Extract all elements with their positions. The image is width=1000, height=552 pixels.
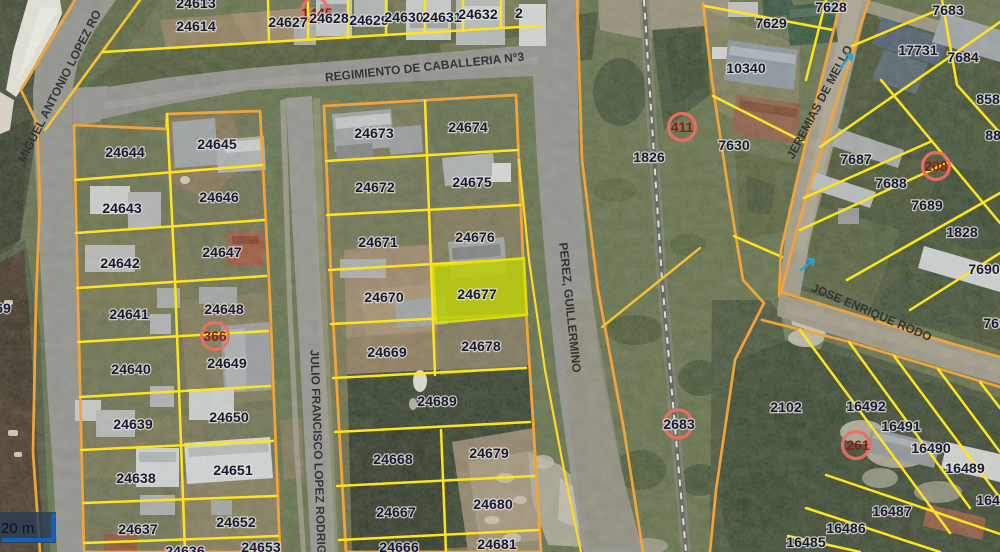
svg-text:24677: 24677 (457, 287, 497, 303)
svg-text:7689: 7689 (911, 198, 943, 214)
svg-text:7688: 7688 (875, 176, 907, 192)
svg-text:24689: 24689 (417, 394, 457, 410)
svg-text:24629: 24629 (349, 13, 389, 29)
svg-text:24680: 24680 (473, 497, 513, 513)
svg-text:24641: 24641 (109, 307, 149, 323)
svg-text:366: 366 (203, 328, 227, 344)
svg-text:24628: 24628 (309, 11, 349, 27)
svg-text:24613: 24613 (176, 0, 216, 12)
svg-text:24627: 24627 (268, 15, 308, 31)
svg-text:411: 411 (671, 119, 694, 135)
svg-text:2102: 2102 (770, 400, 802, 416)
svg-text:208: 208 (924, 158, 948, 174)
svg-text:24646: 24646 (199, 190, 239, 206)
svg-text:24673: 24673 (354, 126, 394, 142)
svg-text:1828: 1828 (946, 225, 978, 241)
svg-text:17731: 17731 (898, 43, 938, 59)
svg-text:16487: 16487 (872, 504, 912, 520)
svg-text:24679: 24679 (469, 446, 509, 462)
svg-text:24667: 24667 (376, 505, 416, 521)
svg-text:1826: 1826 (633, 150, 665, 166)
svg-text:69: 69 (0, 301, 11, 317)
svg-text:24669: 24669 (367, 345, 407, 361)
svg-text:16491: 16491 (881, 419, 921, 435)
svg-text:24672: 24672 (355, 180, 395, 196)
svg-text:24614: 24614 (176, 19, 216, 35)
svg-text:24647: 24647 (202, 245, 242, 261)
svg-text:16485: 16485 (786, 535, 826, 551)
svg-text:24650: 24650 (209, 410, 249, 426)
svg-text:24651: 24651 (213, 463, 253, 479)
svg-text:24630: 24630 (384, 10, 424, 26)
svg-text:24648: 24648 (204, 302, 244, 318)
svg-text:24639: 24639 (113, 417, 153, 433)
svg-text:24674: 24674 (448, 120, 488, 136)
svg-text:24681: 24681 (477, 537, 517, 552)
svg-text:24675: 24675 (452, 175, 492, 191)
svg-text:24632: 24632 (458, 7, 498, 23)
svg-text:24638: 24638 (116, 471, 156, 487)
svg-text:24631: 24631 (422, 10, 462, 26)
svg-text:24645: 24645 (197, 137, 237, 153)
svg-text:24676: 24676 (455, 230, 495, 246)
svg-text:7683: 7683 (932, 3, 964, 19)
svg-text:16486: 16486 (826, 521, 866, 537)
svg-text:24636: 24636 (165, 544, 205, 552)
svg-text:8582: 8582 (976, 92, 1000, 108)
svg-text:10340: 10340 (726, 61, 766, 77)
svg-text:7630: 7630 (718, 138, 750, 154)
svg-text:24644: 24644 (105, 145, 145, 161)
svg-text:24653: 24653 (241, 540, 281, 552)
svg-text:8858: 8858 (985, 128, 1000, 144)
svg-text:24649: 24649 (207, 356, 247, 372)
svg-text:24642: 24642 (100, 256, 140, 272)
svg-text:20 m: 20 m (1, 520, 34, 537)
svg-text:16492: 16492 (846, 399, 886, 415)
svg-text:16488: 16488 (976, 493, 1000, 509)
svg-text:24671: 24671 (358, 235, 398, 251)
svg-text:16489: 16489 (945, 461, 985, 477)
svg-text:7690: 7690 (968, 262, 1000, 278)
svg-text:7687: 7687 (840, 152, 872, 168)
svg-text:7684: 7684 (947, 50, 979, 66)
svg-text:7691: 7691 (983, 316, 1000, 332)
svg-text:24670: 24670 (364, 290, 404, 306)
svg-text:24668: 24668 (373, 452, 413, 468)
svg-text:24640: 24640 (111, 362, 151, 378)
svg-text:261: 261 (846, 437, 870, 453)
svg-text:24652: 24652 (216, 515, 256, 531)
svg-text:2683: 2683 (663, 417, 695, 433)
svg-text:24666: 24666 (379, 540, 419, 552)
svg-text:24637: 24637 (118, 522, 158, 538)
svg-text:16490: 16490 (911, 441, 951, 457)
svg-text:7629: 7629 (755, 16, 787, 32)
svg-text:24678: 24678 (461, 339, 501, 355)
svg-text:7628: 7628 (815, 0, 847, 16)
svg-text:2: 2 (515, 6, 523, 22)
svg-text:24643: 24643 (102, 201, 142, 217)
